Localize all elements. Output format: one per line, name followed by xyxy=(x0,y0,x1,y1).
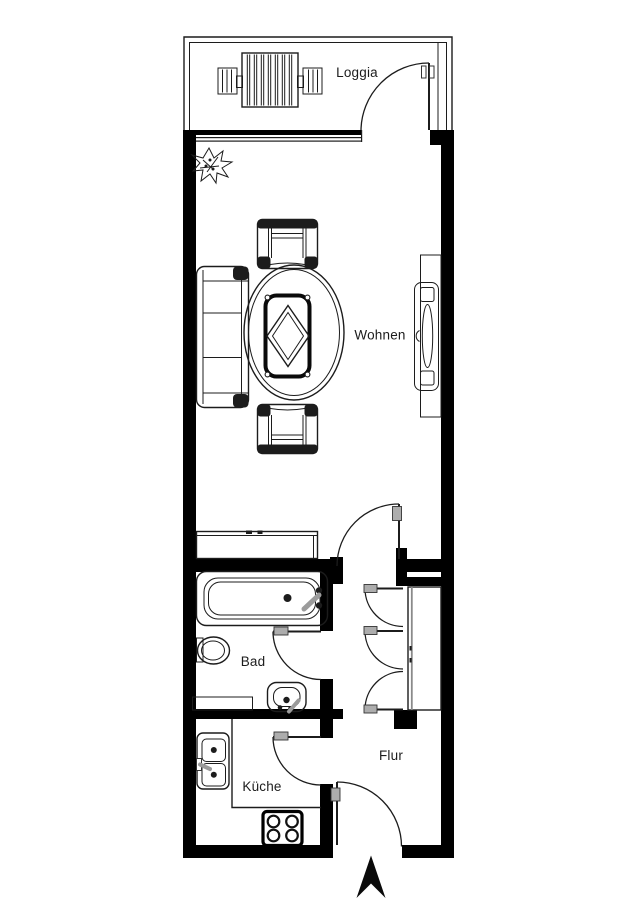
stove-burner xyxy=(268,816,280,828)
loggia-door-handle xyxy=(422,66,427,78)
wall-left xyxy=(183,130,196,858)
hall: Flur xyxy=(331,585,441,847)
wardrobe-door-3 xyxy=(364,672,403,714)
kitchen-door-swing xyxy=(273,737,321,785)
stove-burner xyxy=(286,830,298,842)
loggia-door xyxy=(361,43,438,132)
dining-chair-top xyxy=(258,220,318,269)
stove-burner xyxy=(268,830,280,842)
wardrobe-door-2 xyxy=(364,627,403,670)
living-room-door-swing xyxy=(337,504,399,566)
wall-bath-hall-mid xyxy=(320,679,333,738)
loggia-door-handle xyxy=(430,66,435,78)
wall-bottom-left xyxy=(183,845,333,858)
wardrobe xyxy=(364,585,441,714)
bathroom: Bad xyxy=(193,572,328,712)
kitchen: Küche xyxy=(197,719,322,846)
entrance-door xyxy=(331,782,402,847)
wardrobe-door-1 xyxy=(364,585,403,627)
wall-bottom-right xyxy=(402,845,454,858)
garden-chair-left xyxy=(218,68,243,94)
bathroom-door xyxy=(273,627,321,680)
walls xyxy=(183,130,454,858)
dining-chair-bottom xyxy=(258,405,318,454)
wall-top-right-nib xyxy=(430,130,454,145)
room-label-kueche: Küche xyxy=(242,779,281,794)
window-band xyxy=(196,130,362,142)
loggia-room: Loggia xyxy=(184,37,452,131)
toilet xyxy=(197,637,230,664)
garden-chair-right xyxy=(298,68,323,94)
bathtub-drain xyxy=(284,594,292,602)
kitchen-door-handle xyxy=(274,732,288,740)
dining-table xyxy=(244,265,344,400)
garden-table xyxy=(242,53,298,107)
floor-plan: Loggia xyxy=(0,0,636,900)
tv-board xyxy=(415,255,442,417)
wall-shaft-band xyxy=(402,577,454,586)
living-room: Wohnen xyxy=(192,148,441,566)
living-room-door-handle xyxy=(393,507,402,521)
room-label-loggia: Loggia xyxy=(336,65,378,80)
kitchen-sink xyxy=(197,733,230,789)
plant-icon xyxy=(192,148,232,183)
wall-stub-below-wardrobe xyxy=(394,710,417,729)
bath-shelf xyxy=(193,697,253,710)
entrance-door-swing xyxy=(337,782,402,847)
bathtub xyxy=(197,572,328,626)
washbasin xyxy=(268,683,307,712)
kitchen-door xyxy=(273,732,321,785)
stove-burner xyxy=(286,816,298,828)
room-label-bad: Bad xyxy=(241,654,266,669)
wall-living-bath xyxy=(196,559,330,572)
sofa xyxy=(197,267,249,408)
room-label-flur: Flur xyxy=(379,748,403,763)
wardrobe-door-handle xyxy=(364,627,377,635)
wall-right xyxy=(441,130,454,858)
stove xyxy=(263,812,302,846)
wardrobe-door-handle xyxy=(364,705,377,713)
north-arrow-icon xyxy=(357,856,386,899)
living-room-door xyxy=(337,504,402,566)
entrance-door-handle xyxy=(331,788,340,801)
bathroom-door-handle xyxy=(274,627,288,635)
sideboard xyxy=(197,531,318,559)
floor-plan-page: Loggia xyxy=(0,0,636,900)
wardrobe-door-handle xyxy=(364,585,377,593)
bathroom-door-swing xyxy=(273,632,321,680)
room-label-wohnen: Wohnen xyxy=(354,328,405,343)
